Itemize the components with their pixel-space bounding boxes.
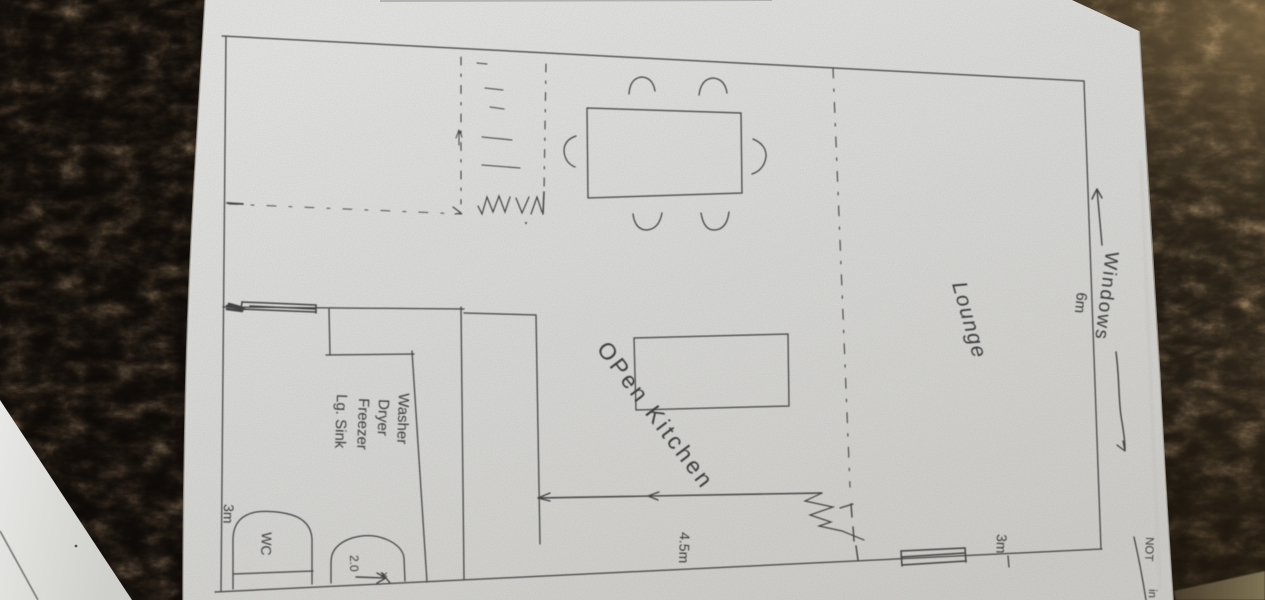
svg-text:NOT: NOT: [1142, 537, 1155, 562]
svg-text:x: x: [378, 572, 390, 578]
svg-text:4.5m: 4.5m: [676, 532, 693, 564]
svg-text:WC: WC: [258, 532, 275, 556]
svg-text:3m: 3m: [993, 534, 1010, 554]
svg-text:Freezer: Freezer: [353, 398, 372, 450]
svg-text:6m: 6m: [1071, 292, 1090, 315]
svg-text:2.0: 2.0: [347, 555, 361, 572]
svg-text:Dryer: Dryer: [374, 399, 392, 436]
svg-text:in: in: [1146, 589, 1158, 598]
svg-text:3m: 3m: [220, 504, 237, 524]
svg-text:Lg. Sink: Lg. Sink: [331, 394, 350, 449]
svg-text:Washer: Washer: [393, 393, 412, 445]
